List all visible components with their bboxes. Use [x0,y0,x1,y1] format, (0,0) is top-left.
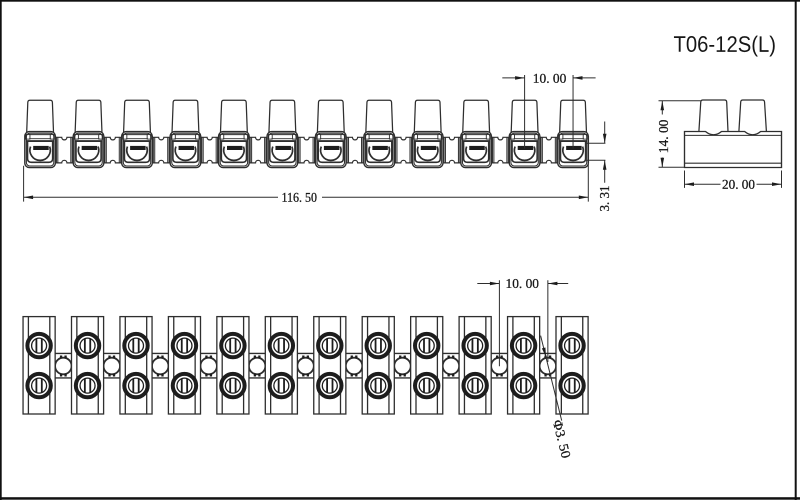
svg-text:20. 00: 20. 00 [722,177,755,192]
svg-text:10. 00: 10. 00 [533,71,567,86]
svg-text:116. 50: 116. 50 [281,190,317,205]
svg-text:14. 00: 14. 00 [656,119,671,153]
svg-text:T06-12S(L): T06-12S(L) [673,32,776,57]
svg-text:10. 00: 10. 00 [505,276,539,291]
svg-text:3. 31: 3. 31 [597,186,612,212]
